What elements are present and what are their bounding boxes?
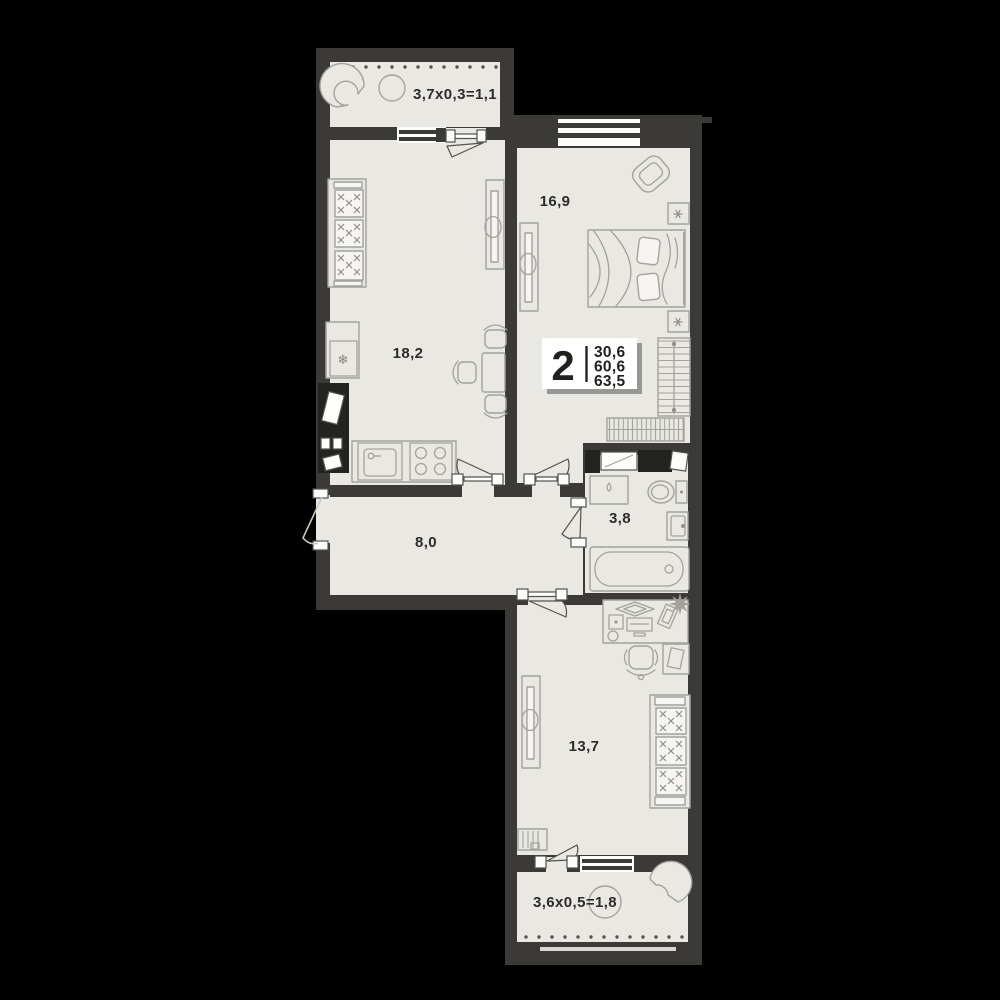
bathtub xyxy=(590,547,689,591)
apartment-badge: 2 30,6 60,6 63,5 xyxy=(542,338,642,394)
wardrobe-mirror xyxy=(522,676,540,768)
nightstand xyxy=(668,203,689,224)
room-hallway xyxy=(330,497,583,595)
fridge: ❄ xyxy=(326,322,359,378)
wardrobe-mirror xyxy=(485,180,504,269)
badge-room-count: 2 xyxy=(551,342,574,389)
kitchen-counter xyxy=(352,441,456,482)
dining-table xyxy=(482,353,505,392)
floor-plan-canvas: ❄ xyxy=(0,0,1000,1000)
label-balcony-bottom: 3,6x0,5=1,8 xyxy=(533,894,617,911)
round-table xyxy=(379,75,405,101)
desk xyxy=(603,593,691,643)
dresser xyxy=(518,829,547,850)
sofa xyxy=(650,695,690,808)
clothes-rack xyxy=(607,418,684,441)
utility-shafts-bathroom xyxy=(585,443,702,473)
kitchen-balcony-window xyxy=(397,127,446,143)
utility-shafts-kitchen xyxy=(318,383,349,473)
label-hallway: 8,0 xyxy=(415,534,437,551)
sliding-wardrobe xyxy=(658,338,690,416)
balcony-bottom-window xyxy=(580,856,634,872)
side-table xyxy=(663,644,689,674)
wardrobe-mirror xyxy=(520,223,538,311)
label-bedroom-2: 13,7 xyxy=(569,738,600,755)
washing-machine xyxy=(590,476,628,504)
nightstand xyxy=(668,311,689,332)
label-bathroom: 3,8 xyxy=(609,510,631,527)
floor-plan: ❄ xyxy=(0,0,1000,1000)
label-bedroom: 16,9 xyxy=(540,193,571,210)
sofa xyxy=(328,179,366,287)
snowflake-icon: ❄ xyxy=(338,352,349,367)
bedroom-window xyxy=(558,119,640,146)
label-balcony-top: 3,7x0,3=1,1 xyxy=(413,86,497,103)
bathroom-sink xyxy=(667,512,688,540)
label-kitchen-living: 18,2 xyxy=(393,345,424,362)
bed xyxy=(588,230,685,307)
badge-area-total: 63,5 xyxy=(594,373,625,390)
plant-icon xyxy=(669,593,691,615)
entrance-door xyxy=(303,489,330,550)
toilet xyxy=(648,481,687,503)
